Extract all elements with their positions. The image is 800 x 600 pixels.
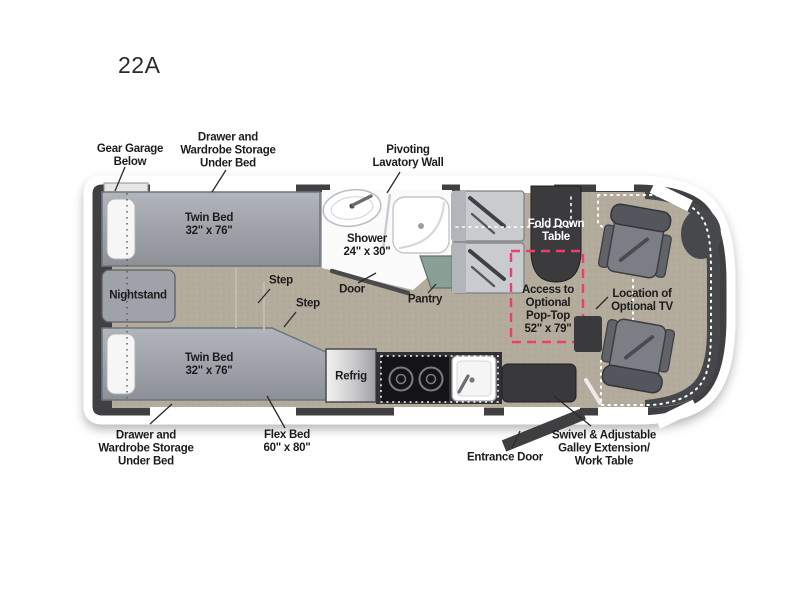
swivel-table-arm	[574, 316, 602, 352]
label-entrance-door: Entrance Door	[467, 452, 543, 465]
label-flex-bed: Flex Bed 60" x 80"	[263, 429, 310, 455]
label-twin-bed-top: Twin Bed 32" x 76"	[185, 212, 233, 238]
cooktop	[381, 356, 449, 402]
label-fold-down-table: Fold Down Table	[528, 218, 585, 244]
sink-drain	[469, 377, 474, 382]
label-twin-bed-bottom: Twin Bed 32" x 76"	[185, 352, 233, 378]
label-refrigerator: Refrig	[335, 371, 367, 384]
swivel-work-table	[502, 364, 576, 402]
pillow	[107, 199, 135, 259]
shower-drain	[418, 223, 424, 229]
label-pivoting-lavatory-wall: Pivoting Lavatory Wall	[372, 144, 443, 170]
window	[596, 179, 634, 191]
seat-backrest	[452, 243, 466, 293]
label-door: Door	[339, 284, 365, 297]
label-pop-top-access: Access to Optional Pop-Top 52" x 79"	[522, 284, 574, 336]
label-shower: Shower 24" x 30"	[343, 233, 390, 259]
window	[394, 407, 484, 418]
label-drawer-storage-top: Drawer and Wardrobe Storage Under Bed	[180, 132, 275, 171]
label-gear-garage: Gear Garage Below	[97, 143, 163, 169]
label-pantry: Pantry	[408, 294, 442, 307]
window	[598, 407, 648, 418]
label-nightstand: Nightstand	[109, 290, 167, 303]
pillow	[107, 334, 135, 394]
label-step-upper: Step	[269, 275, 293, 288]
label-step-lower: Step	[296, 298, 320, 311]
label-optional-tv: Location of Optional TV	[611, 288, 673, 314]
window	[150, 180, 296, 192]
label-galley-work-table: Swivel & Adjustable Galley Extension/ Wo…	[552, 430, 656, 469]
label-drawer-storage-bottom: Drawer and Wardrobe Storage Under Bed	[98, 430, 193, 469]
engine-cover-bulge	[681, 209, 721, 259]
floorplan-page: 22A	[0, 0, 800, 600]
seat-backrest	[452, 191, 466, 241]
